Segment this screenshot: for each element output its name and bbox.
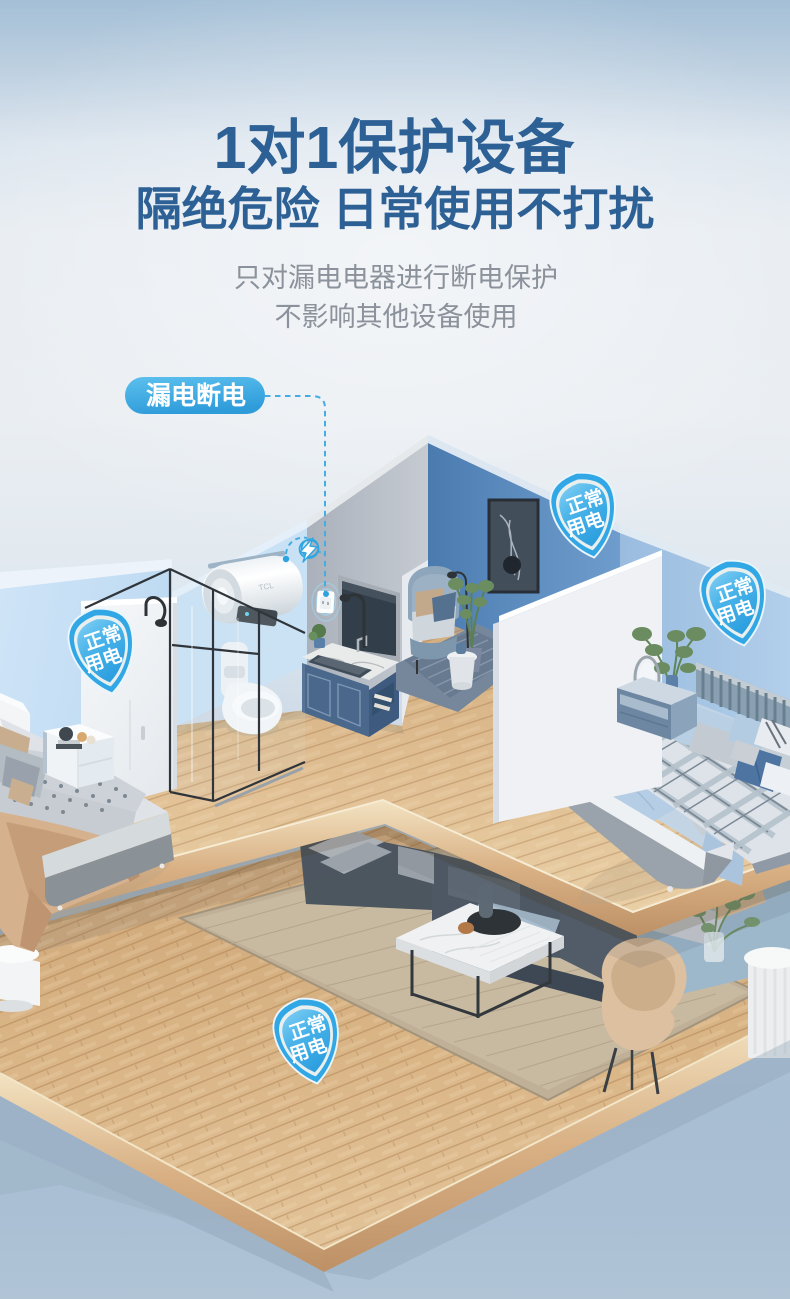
svg-text:只对漏电电器进行断电保护: 只对漏电电器进行断电保护 <box>234 263 558 293</box>
svg-text:隔绝危险 日常使用不打扰: 隔绝危险 日常使用不打扰 <box>136 183 655 235</box>
svg-text:不影响其他设备使用: 不影响其他设备使用 <box>275 302 518 332</box>
svg-text:漏电断电: 漏电断电 <box>146 381 246 410</box>
svg-text:1对1保护设备: 1对1保护设备 <box>214 115 576 181</box>
